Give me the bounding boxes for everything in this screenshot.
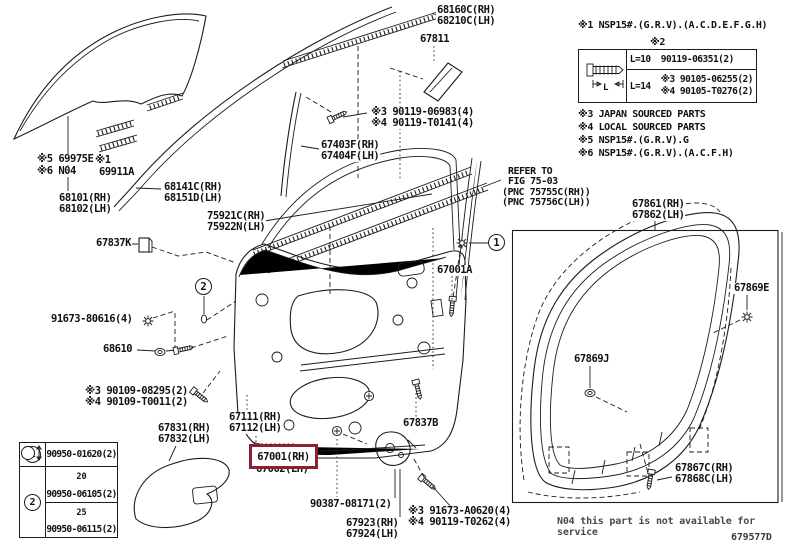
footnote-4: ※4 LOCAL SOURCED PARTS [578, 122, 705, 133]
weatherstrip-box-drawing [513, 203, 783, 503]
footnote-1: ※1 NSP15#.(G.R.V).(A.C.D.E.F.G.H) [578, 20, 767, 31]
bolt-length-value: L=14 [630, 81, 661, 92]
bolt-icon [412, 379, 424, 400]
figure-code: 679577D [731, 532, 772, 543]
bolt-table-row-l14: L=14 ※3 90105-06255(2) ※4 90105-T0276(2) [627, 70, 756, 102]
footnote-6: ※6 NSP15#.(G.R.V).(A.C.F.H) [578, 148, 733, 159]
clip-icon [143, 316, 154, 327]
bolt-part-number: ※3 90105-06255(2) [661, 74, 753, 86]
footnote-3: ※3 JAPAN SOURCED PARTS [578, 109, 705, 120]
refer-note: REFER TO FIG 75-03 (PNC 75755C(RH)) (PNC… [502, 167, 590, 208]
highlighted-part-label: 67001(RH) [257, 451, 309, 463]
bolt-icon [645, 469, 655, 490]
screw-icon [190, 387, 210, 405]
legend-part-number: 90950-06115(2) [46, 523, 116, 538]
legend-part-number: 90950-01620(2) [46, 443, 117, 466]
highlighted-part-67001: 67001(RH) [249, 444, 318, 469]
clip-size-value: 25 [76, 508, 86, 518]
clip-icon [457, 238, 468, 249]
door-glass-drawing [14, 14, 206, 191]
bolt-length-value: L=10 [630, 54, 661, 65]
refer-line: (PNC 75756C(LH)) [502, 198, 590, 208]
callout-2: 2 [195, 278, 212, 295]
legend-row-2: 2 20 90950-06105(2) [20, 467, 117, 537]
footnote-5: ※5 NSP15#.(G.R.V).G [578, 135, 689, 146]
legend-row-2b: 25 90950-06115(2) [46, 503, 117, 538]
grommet-icon [155, 348, 165, 355]
bolt-part-number: 90119-06351(2) [661, 54, 734, 66]
bolt-table-row-l10: L=10 90119-06351(2) [627, 50, 756, 70]
clip-legend-table: 1 90950-01620(2) 2 20 90950-06105(2) [19, 442, 118, 538]
clip-icon [742, 312, 753, 323]
front-door-parts-diagram: ※5 69975E※1※6 N0469911A68101(RH)68102(LH… [0, 0, 796, 549]
clip-size-icon [20, 443, 46, 463]
service-cover-drawing [134, 426, 452, 527]
callout-1: 1 [488, 234, 505, 251]
screw-icon [364, 391, 373, 400]
footnote-2-mark: ※2 [650, 37, 665, 48]
bolt-part-number: ※4 90105-T0276(2) [661, 86, 753, 98]
bolt-icon [173, 344, 194, 355]
legend-row-2a: 20 90950-06105(2) [46, 467, 117, 503]
clip-size-value: 20 [76, 472, 86, 482]
frame-moldings-drawing [114, 7, 501, 300]
grommet-icon [585, 389, 595, 396]
screw-icon [332, 426, 341, 435]
bolt-length-table: L L=10 90119-06351(2) L=14 ※3 90105-0625… [578, 49, 757, 103]
bolt-length-icon: L [579, 50, 627, 102]
legend-part-number: 90950-06105(2) [46, 487, 116, 502]
door-panel-drawing [234, 148, 466, 458]
legend-callout-2: 2 [24, 494, 41, 511]
